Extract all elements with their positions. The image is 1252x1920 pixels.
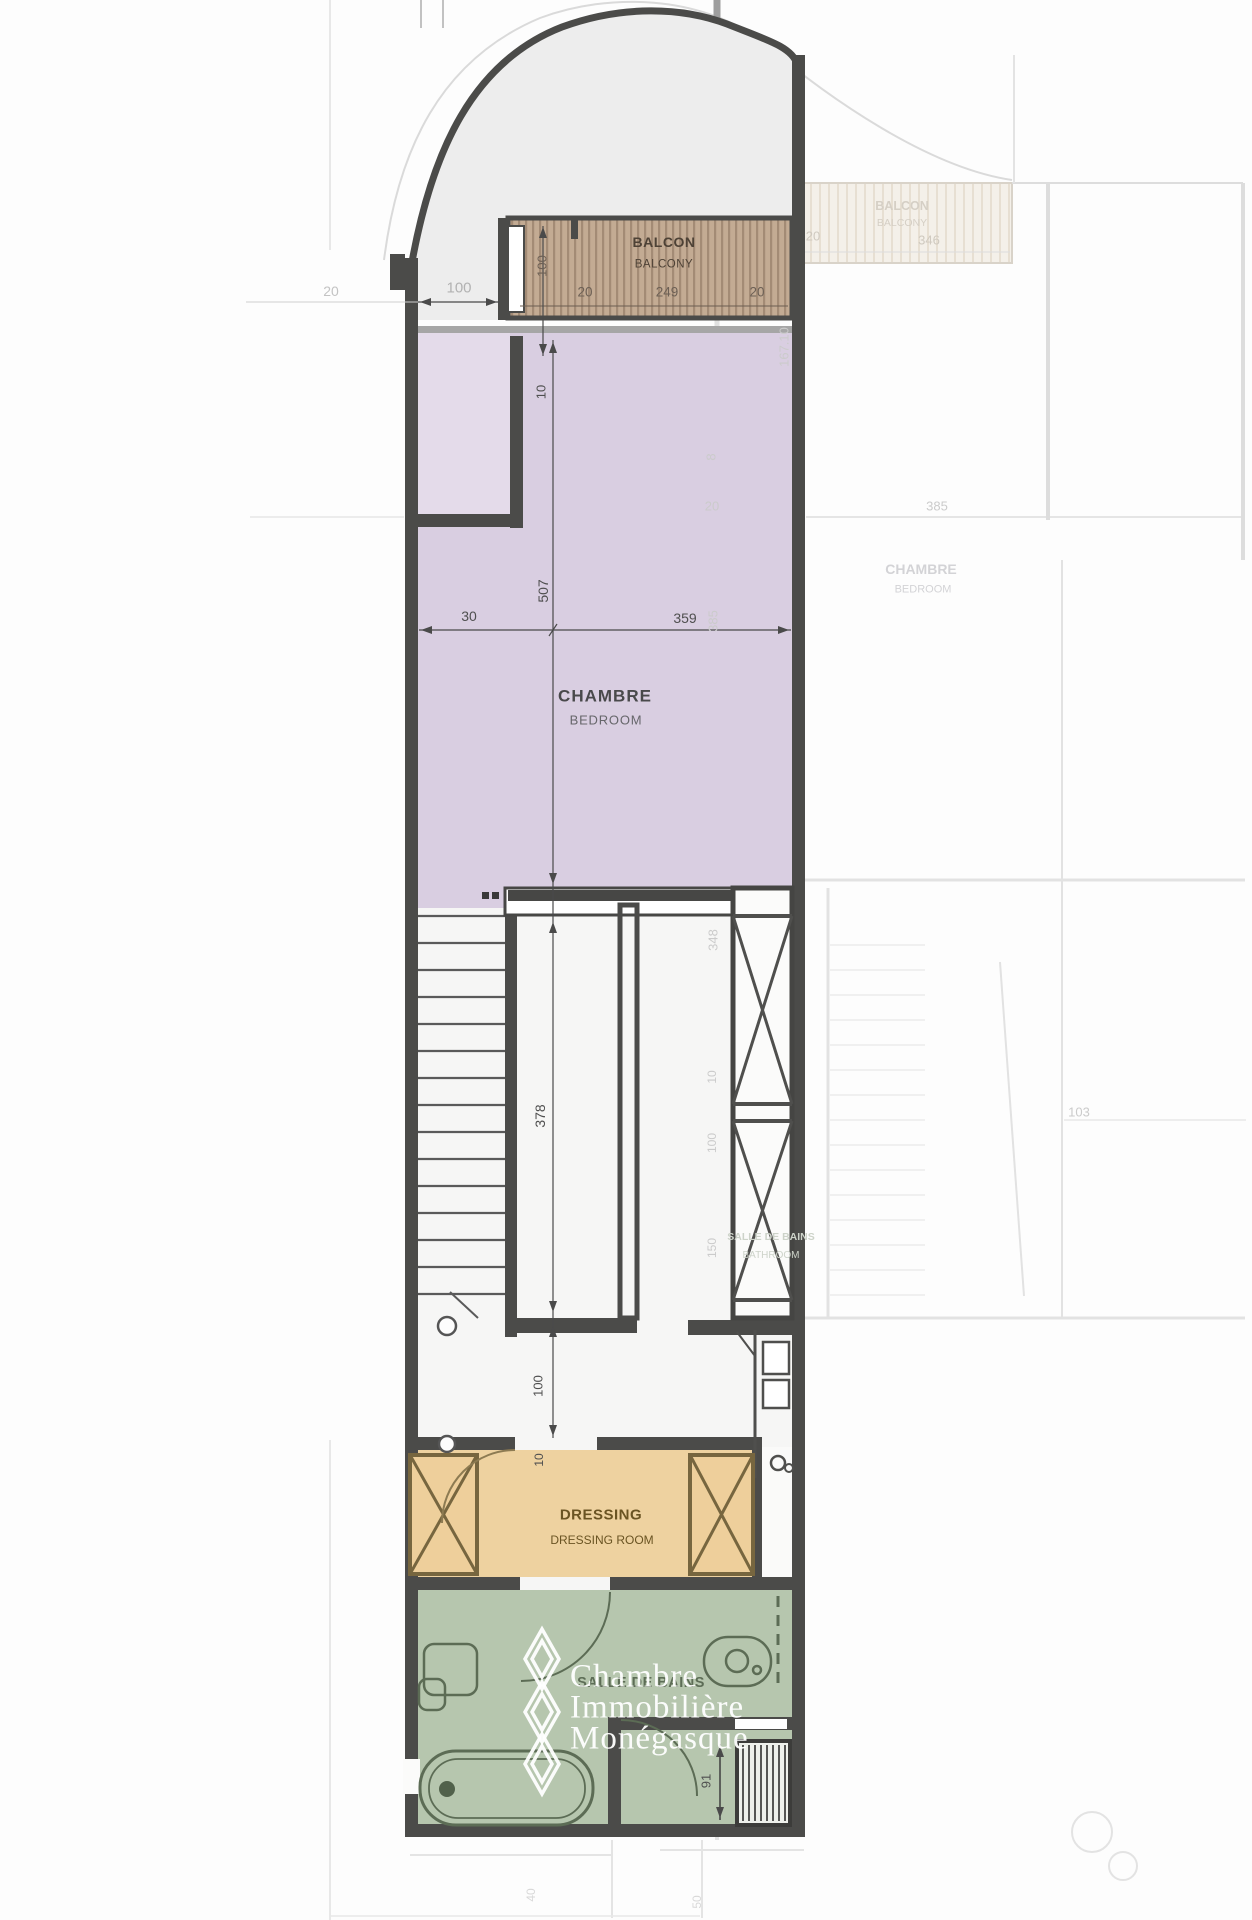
floor-plan-canvas: BALCON BALCONY 20 100 20 249 20 100 10 5… (0, 0, 1252, 1920)
agency-watermark: Chambre Immobilière Monégasque (0, 0, 1252, 1920)
watermark-diamonds-logo (0, 0, 1252, 1920)
